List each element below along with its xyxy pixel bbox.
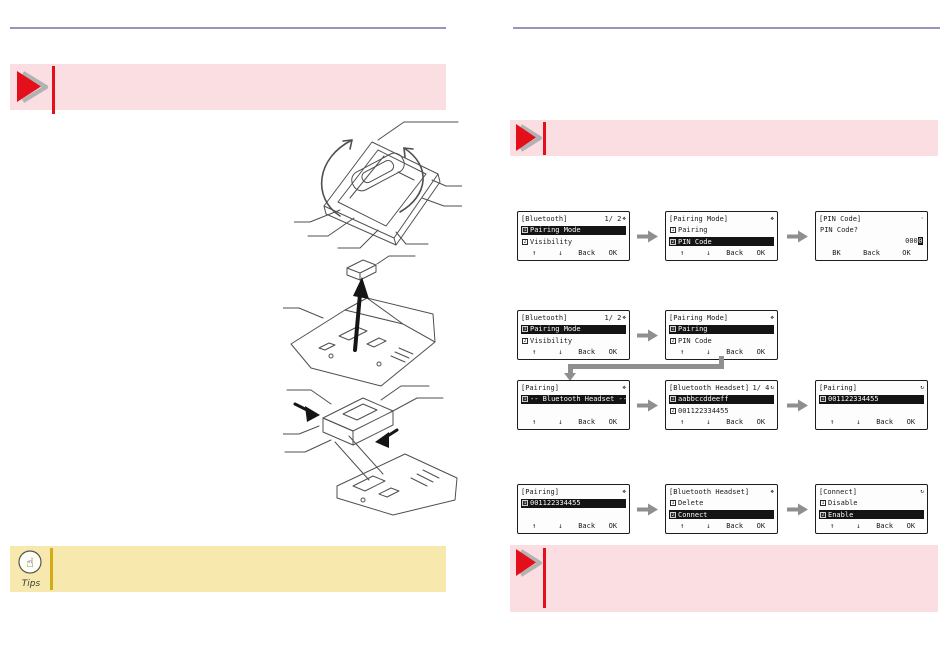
lcd-menu-item: 1Disable bbox=[819, 499, 924, 508]
down-arrow-softkey: ↓ bbox=[845, 418, 871, 426]
lcd-title: [Pairing] bbox=[521, 384, 559, 392]
lcd-page-indicator: 1/ 2 bbox=[605, 215, 622, 223]
ok-softkey: OK bbox=[748, 522, 774, 530]
lcd-softkeys: ↑↓BackOK bbox=[669, 249, 774, 258]
lcd-menu-item: 1Pairing Mode bbox=[521, 226, 626, 235]
ok-softkey: OK bbox=[600, 522, 626, 530]
cover-removal-diagram bbox=[283, 252, 445, 398]
lcd-menu-item: 2Visibility bbox=[521, 336, 626, 345]
ok-softkey: OK bbox=[600, 418, 626, 426]
nav-cluster-icon: ❖ bbox=[622, 385, 626, 391]
pin-entry-field: 0000 bbox=[819, 237, 924, 246]
nav-cluster-icon: ❖ bbox=[622, 489, 626, 495]
lcd-menu-item: 1001122334455 bbox=[521, 499, 626, 508]
lcd-menu-item: 1Pairing bbox=[669, 325, 774, 334]
ok-softkey: OK bbox=[748, 418, 774, 426]
lcd-page-indicator: 1/ 4 bbox=[753, 384, 770, 392]
up-arrow-softkey: ↑ bbox=[669, 348, 695, 356]
nav-cluster-icon: ❖ bbox=[770, 489, 774, 495]
ok-softkey: OK bbox=[748, 249, 774, 257]
lcd-menu-item: 1Pairing Mode bbox=[521, 325, 626, 334]
lcd-title: [Bluetooth] bbox=[521, 215, 567, 223]
nav-cluster-icon: ❖ bbox=[770, 315, 774, 321]
lcd-menu-item: 2Enable bbox=[819, 510, 924, 519]
flow-arrow-icon bbox=[637, 329, 659, 342]
pin-prompt: PIN Code? bbox=[819, 226, 924, 235]
tips-hand-icon: ☝ bbox=[26, 556, 34, 571]
note-arrow-icon bbox=[13, 69, 51, 105]
lcd-softkeys: ↑↓BackOK bbox=[521, 348, 626, 357]
handset-cradle-diagram bbox=[294, 114, 462, 254]
sync-icon: ↻ bbox=[770, 385, 774, 391]
lcd-menu-item: 1001122334455 bbox=[819, 395, 924, 404]
nav-cluster-icon: ❖ bbox=[622, 216, 626, 222]
pin-cursor: 0 bbox=[918, 237, 923, 245]
lcd-title: [Bluetooth Headset] bbox=[669, 488, 749, 496]
back-softkey: Back bbox=[574, 249, 600, 257]
lcd-title: [Connect] bbox=[819, 488, 857, 496]
back-softkey: Back bbox=[722, 418, 748, 426]
lcd-menu-item: 2PIN Code bbox=[669, 336, 774, 345]
lcd-screen-pairing: [Pairing] ❖ 1-- Bluetooth Headset -- ↑↓B… bbox=[517, 380, 630, 430]
lcd-menu-item: 2Visibility bbox=[521, 237, 626, 246]
ok-softkey: OK bbox=[600, 348, 626, 356]
back-softkey: Back bbox=[722, 348, 748, 356]
lcd-softkeys: ↑↓BackOK bbox=[521, 522, 626, 531]
lcd-softkeys: ↑↓BackOK bbox=[669, 522, 774, 531]
back-softkey: Back bbox=[722, 249, 748, 257]
lcd-softkeys: ↑↓BackOK bbox=[521, 418, 626, 427]
down-arrow-softkey: ↓ bbox=[845, 522, 871, 530]
up-arrow-softkey: ↑ bbox=[669, 522, 695, 530]
tips-icon: ☝ Tips bbox=[13, 548, 49, 590]
down-arrow-softkey: ↓ bbox=[695, 522, 721, 530]
back-softkey: Back bbox=[574, 418, 600, 426]
lcd-title: [Bluetooth] bbox=[521, 314, 567, 322]
note-accent-bar bbox=[543, 548, 546, 608]
lcd-screen-pairing-mode: [Pairing Mode] ❖ 1Pairing 2PIN Code ↑↓Ba… bbox=[665, 310, 778, 360]
up-arrow-softkey: ↑ bbox=[521, 249, 547, 257]
left-procedure-note-box bbox=[10, 64, 446, 110]
back-softkey: Back bbox=[722, 522, 748, 530]
lcd-menu-item: 1Delete bbox=[669, 499, 774, 508]
lcd-menu-item: 2PIN Code bbox=[669, 237, 774, 246]
signal-dot-icon: · bbox=[920, 216, 924, 222]
tips-label: Tips bbox=[22, 579, 41, 589]
lcd-softkeys: BKBackOK bbox=[819, 249, 924, 258]
note-accent-bar bbox=[52, 66, 55, 114]
note-arrow-icon bbox=[512, 122, 544, 154]
flow-arrow-icon bbox=[787, 230, 809, 243]
lcd-softkeys: ↑↓BackOK bbox=[819, 418, 924, 427]
flow-arrow-icon bbox=[787, 503, 809, 516]
bk-softkey: BK bbox=[819, 249, 854, 257]
left-column-rule bbox=[10, 27, 446, 29]
ok-softkey: OK bbox=[889, 249, 924, 257]
lcd-title: [Pairing] bbox=[521, 488, 559, 496]
up-arrow-softkey: ↑ bbox=[521, 418, 547, 426]
tips-accent-bar bbox=[50, 548, 53, 590]
down-arrow-softkey: ↓ bbox=[695, 348, 721, 356]
lcd-screen-pairing-mode: [Pairing Mode] ❖ 1Pairing 2PIN Code ↑↓Ba… bbox=[665, 211, 778, 261]
adapter-install-diagram bbox=[283, 382, 460, 516]
ok-softkey: OK bbox=[898, 522, 924, 530]
lcd-menu-item: 2001122334455 bbox=[669, 406, 774, 415]
down-arrow-softkey: ↓ bbox=[695, 418, 721, 426]
manual-page: ☝ Tips [Bluetooth] 1/ 2❖ 1Pairing Mode 2… bbox=[0, 0, 950, 659]
up-arrow-softkey: ↑ bbox=[669, 249, 695, 257]
lcd-screen-pairing: [Pairing] ❖ 1001122334455 ↑↓BackOK bbox=[517, 484, 630, 534]
down-arrow-softkey: ↓ bbox=[547, 348, 573, 356]
back-softkey: Back bbox=[574, 348, 600, 356]
lcd-screen-connect: [Connect] ↻ 1Disable 2Enable ↑↓BackOK bbox=[815, 484, 928, 534]
lcd-screen-pin-code: [PIN Code] · PIN Code? 0000 BKBackOK bbox=[815, 211, 928, 261]
note-accent-bar bbox=[543, 122, 546, 155]
nav-cluster-icon: ❖ bbox=[770, 216, 774, 222]
lcd-softkeys: ↑↓BackOK bbox=[819, 522, 924, 531]
down-arrow-softkey: ↓ bbox=[547, 522, 573, 530]
up-arrow-softkey: ↑ bbox=[521, 522, 547, 530]
right-procedure-note-box bbox=[510, 120, 938, 156]
down-arrow-softkey: ↓ bbox=[695, 249, 721, 257]
lcd-title: [Bluetooth Headset] bbox=[669, 384, 749, 392]
down-arrow-softkey: ↓ bbox=[547, 418, 573, 426]
lcd-menu-item: 1-- Bluetooth Headset -- bbox=[521, 395, 626, 404]
lcd-screen-bluetooth-menu: [Bluetooth] 1/ 2❖ 1Pairing Mode 2Visibil… bbox=[517, 310, 630, 360]
lcd-screen-bluetooth-headset-list: [Bluetooth Headset] 1/ 4↻ 1aabbccddeeff … bbox=[665, 380, 778, 430]
right-column-rule bbox=[513, 27, 940, 29]
ok-softkey: OK bbox=[898, 418, 924, 426]
back-softkey: Back bbox=[872, 522, 898, 530]
back-softkey: Back bbox=[854, 249, 889, 257]
lcd-softkeys: ↑↓BackOK bbox=[669, 418, 774, 427]
lcd-softkeys: ↑↓BackOK bbox=[521, 249, 626, 258]
lcd-screen-bluetooth-menu: [Bluetooth] 1/ 2❖ 1Pairing Mode 2Visibil… bbox=[517, 211, 630, 261]
bottom-note-box bbox=[510, 545, 938, 612]
lcd-title: [Pairing] bbox=[819, 384, 857, 392]
lcd-page-indicator: 1/ 2 bbox=[605, 314, 622, 322]
flow-connector bbox=[568, 364, 724, 369]
lcd-menu-item: 1aabbccddeeff bbox=[669, 395, 774, 404]
ok-softkey: OK bbox=[600, 249, 626, 257]
down-arrow-softkey: ↓ bbox=[547, 249, 573, 257]
sync-icon: ↻ bbox=[920, 489, 924, 495]
up-arrow-softkey: ↑ bbox=[819, 418, 845, 426]
flow-arrow-icon bbox=[637, 503, 659, 516]
ok-softkey: OK bbox=[748, 348, 774, 356]
back-softkey: Back bbox=[574, 522, 600, 530]
lcd-screen-pairing: [Pairing] ↻ 1001122334455 ↑↓BackOK bbox=[815, 380, 928, 430]
up-arrow-softkey: ↑ bbox=[669, 418, 695, 426]
lcd-title: [Pairing Mode] bbox=[669, 215, 728, 223]
tips-box bbox=[10, 546, 446, 592]
lcd-title: [PIN Code] bbox=[819, 215, 861, 223]
note-arrow-icon bbox=[512, 547, 544, 579]
flow-arrow-icon bbox=[787, 399, 809, 412]
lcd-screen-bluetooth-headset-actions: [Bluetooth Headset] ❖ 1Delete 2Connect ↑… bbox=[665, 484, 778, 534]
lcd-menu-item: 1Pairing bbox=[669, 226, 774, 235]
up-arrow-softkey: ↑ bbox=[819, 522, 845, 530]
up-arrow-softkey: ↑ bbox=[521, 348, 547, 356]
sync-icon: ↻ bbox=[920, 385, 924, 391]
flow-arrow-icon bbox=[637, 230, 659, 243]
nav-cluster-icon: ❖ bbox=[622, 315, 626, 321]
back-softkey: Back bbox=[872, 418, 898, 426]
flow-arrow-icon bbox=[637, 399, 659, 412]
lcd-title: [Pairing Mode] bbox=[669, 314, 728, 322]
lcd-menu-item: 2Connect bbox=[669, 510, 774, 519]
